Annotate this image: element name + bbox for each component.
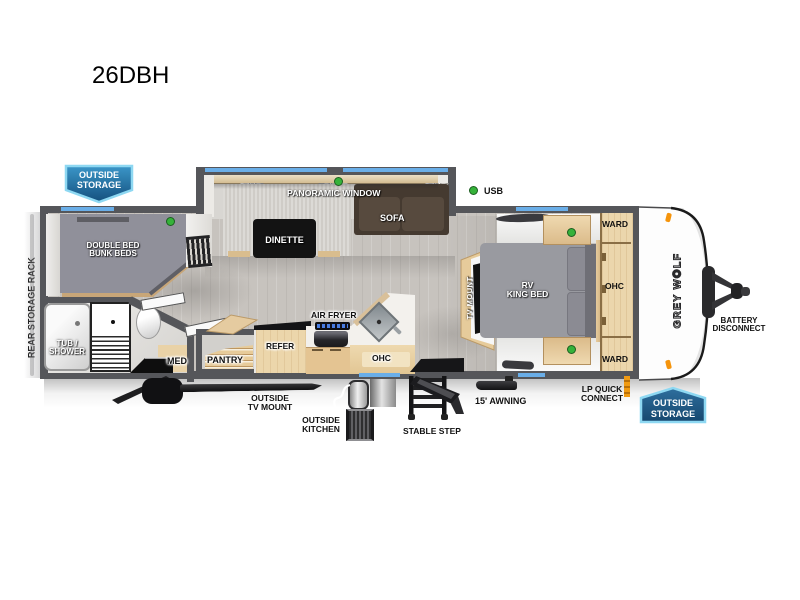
svg-text:STORAGE: STORAGE: [77, 180, 121, 190]
svg-text:OUTSIDE: OUTSIDE: [79, 170, 119, 180]
svg-text:OUTSIDE: OUTSIDE: [653, 398, 693, 408]
svg-text:STORAGE: STORAGE: [651, 409, 695, 419]
